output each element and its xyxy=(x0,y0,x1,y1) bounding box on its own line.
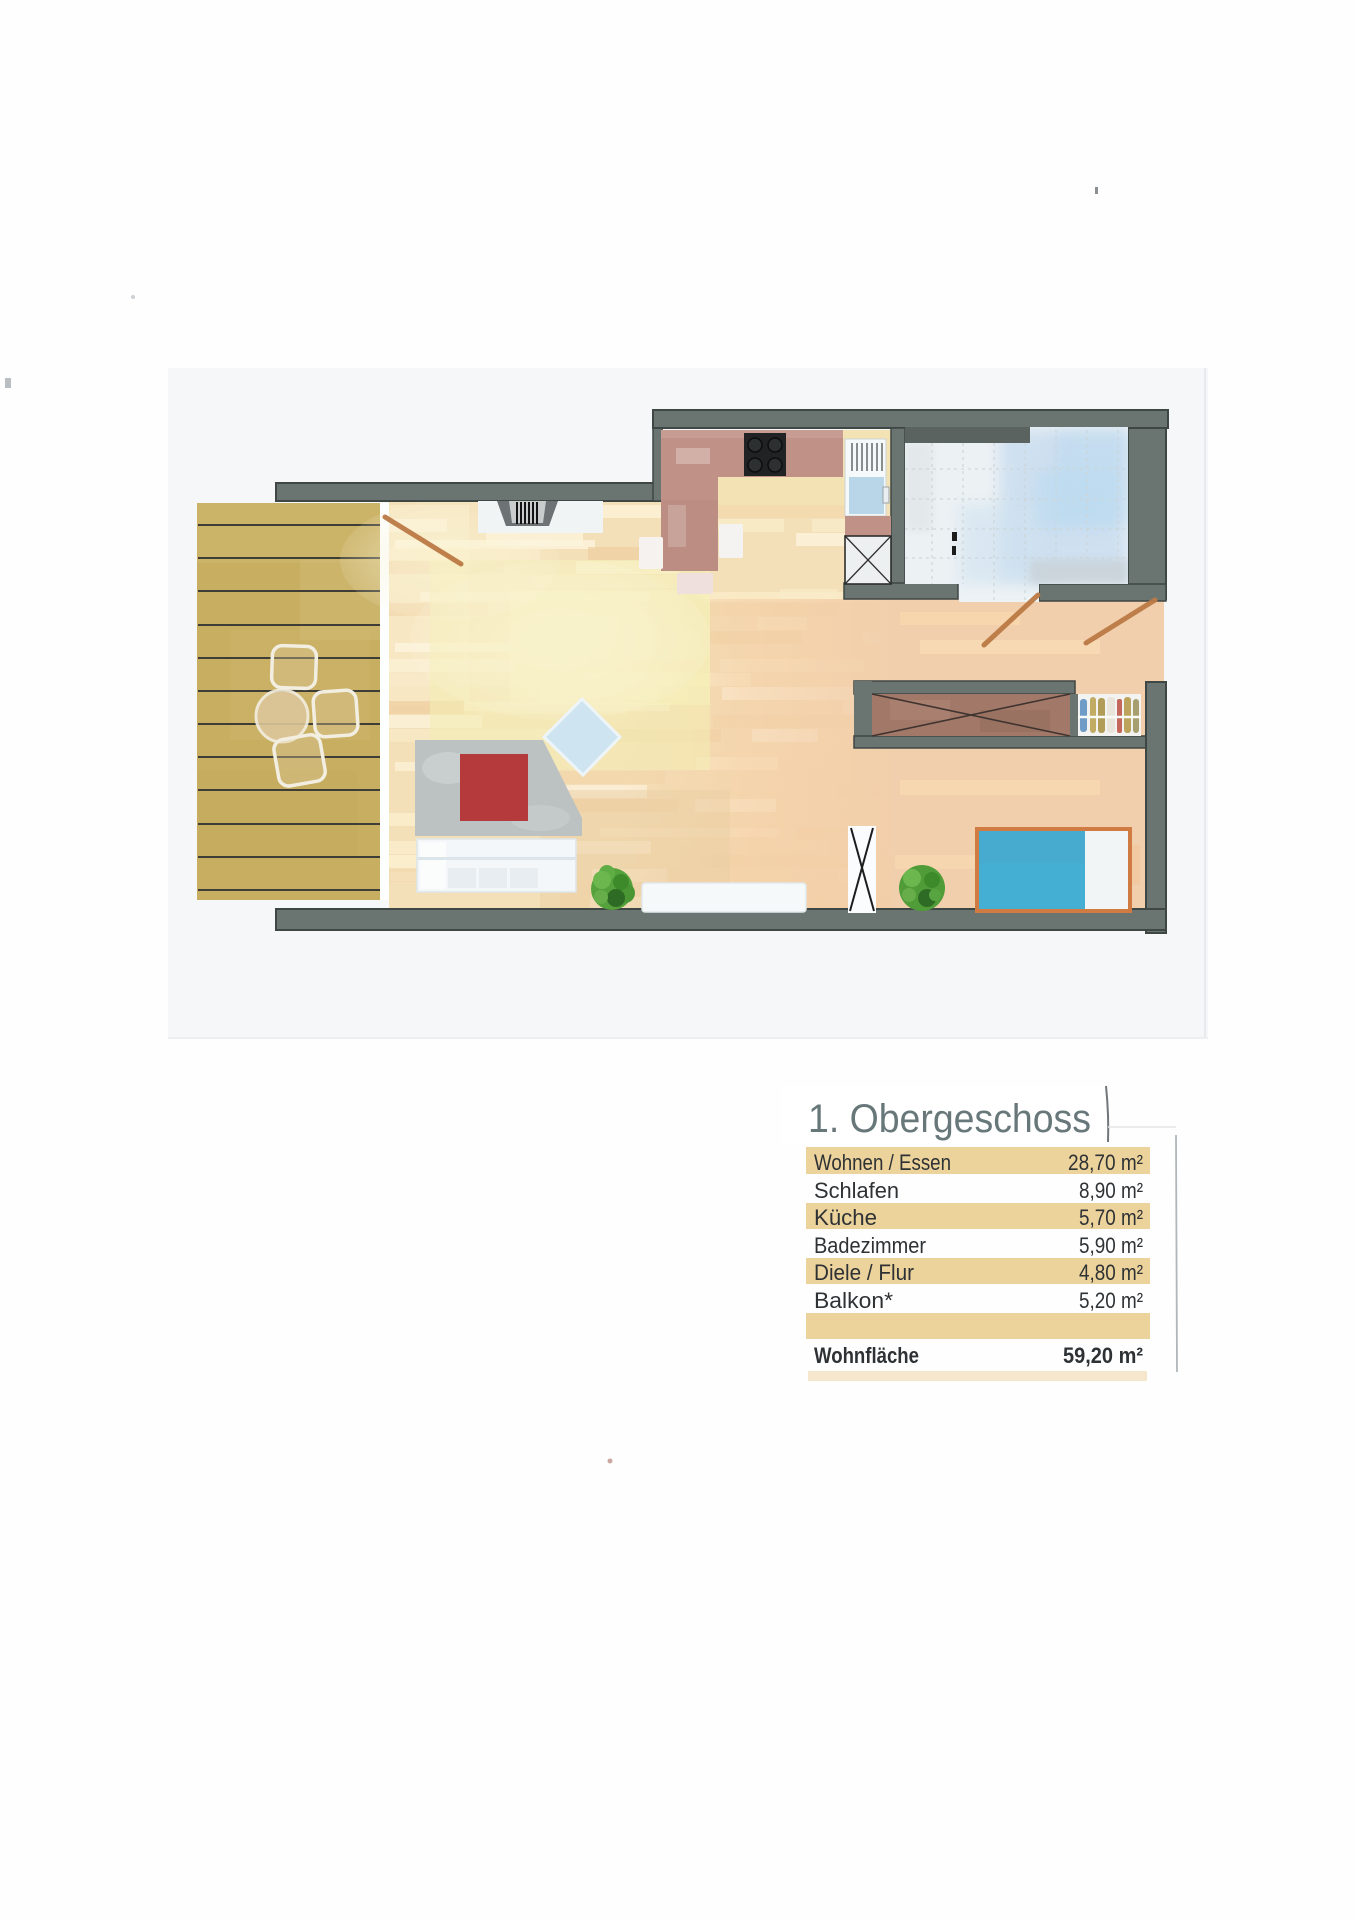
svg-text:5,70 m²: 5,70 m² xyxy=(1079,1205,1143,1230)
svg-text:5,90 m²: 5,90 m² xyxy=(1079,1233,1143,1258)
svg-text:5,20 m²: 5,20 m² xyxy=(1079,1288,1143,1313)
svg-text:1. Obergeschoss: 1. Obergeschoss xyxy=(808,1097,1091,1141)
svg-text:8,90 m²: 8,90 m² xyxy=(1079,1178,1143,1203)
svg-text:59,20 m²: 59,20 m² xyxy=(1063,1343,1143,1368)
svg-text:Wohnfläche: Wohnfläche xyxy=(814,1343,919,1368)
svg-text:4,80 m²: 4,80 m² xyxy=(1079,1260,1143,1285)
svg-text:Diele / Flur: Diele / Flur xyxy=(814,1260,914,1285)
svg-text:Schlafen: Schlafen xyxy=(814,1178,899,1203)
svg-text:Badezimmer: Badezimmer xyxy=(814,1233,926,1258)
svg-text:Balkon*: Balkon* xyxy=(814,1288,893,1313)
svg-text:Küche: Küche xyxy=(814,1205,877,1230)
svg-text:Wohnen / Essen: Wohnen / Essen xyxy=(814,1150,951,1175)
svg-text:28,70 m²: 28,70 m² xyxy=(1068,1150,1143,1175)
